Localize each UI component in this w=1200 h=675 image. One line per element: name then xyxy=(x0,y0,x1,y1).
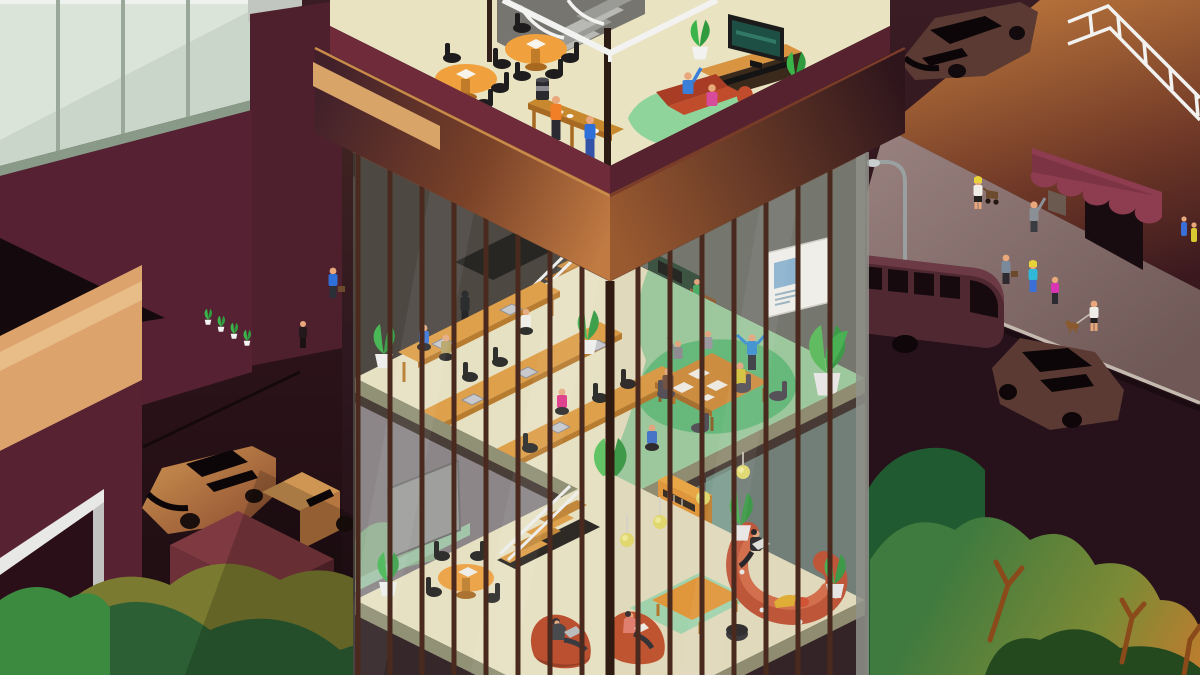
person-leg xyxy=(1091,323,1094,331)
glass-top-frame xyxy=(0,0,252,4)
bus-window xyxy=(914,272,934,296)
person-shorts xyxy=(1091,318,1098,323)
person-alley-dark xyxy=(299,321,307,348)
illustration-stage xyxy=(0,0,1200,675)
car-wheel xyxy=(1062,412,1082,428)
person-head xyxy=(1052,277,1058,283)
person-leg xyxy=(975,202,978,209)
person-torso xyxy=(585,124,596,139)
person-torso xyxy=(551,104,562,120)
person-head xyxy=(1091,301,1098,308)
person-legs xyxy=(1031,221,1038,232)
person-legs xyxy=(300,338,306,348)
car-wheel xyxy=(1009,26,1025,40)
person-legs xyxy=(330,286,337,298)
person-legs xyxy=(1052,293,1058,304)
person-leg xyxy=(1095,323,1098,331)
car-wheel xyxy=(948,64,966,78)
person-skirt xyxy=(974,196,982,202)
bus-window xyxy=(888,269,908,293)
person-torso xyxy=(329,274,338,286)
person-torso xyxy=(299,327,307,338)
person-hair-blonde xyxy=(974,176,982,183)
person-legs xyxy=(552,120,561,140)
person-magenta-woman xyxy=(1051,277,1059,304)
person-torso xyxy=(974,185,983,196)
bus-wheel xyxy=(892,335,918,353)
briefcase xyxy=(338,286,345,292)
person-leg xyxy=(979,202,982,209)
person-legs xyxy=(1030,280,1037,292)
person-torso xyxy=(683,80,694,94)
person-torso xyxy=(1090,307,1099,318)
car-wheel xyxy=(999,384,1017,400)
person-teal-woman xyxy=(1029,260,1038,292)
person-torso xyxy=(1030,208,1039,221)
scene-illustration xyxy=(0,0,1200,675)
person-hair-blonde xyxy=(1029,260,1037,267)
taxi-wheel xyxy=(180,513,200,529)
briefcase xyxy=(1011,271,1018,277)
person-torso xyxy=(1029,269,1038,280)
rooftop-divider-post xyxy=(487,0,492,62)
coffee-machine xyxy=(536,78,549,101)
person-head xyxy=(1003,255,1010,262)
person-head xyxy=(300,321,306,327)
person-torso xyxy=(1051,283,1059,293)
person-torso xyxy=(1002,261,1011,273)
person-legs xyxy=(1003,273,1010,284)
person-head xyxy=(1030,201,1037,208)
person-head xyxy=(330,268,337,275)
bus-window xyxy=(940,275,960,299)
bush-green-left xyxy=(0,587,110,675)
right-edge-strip xyxy=(856,152,869,675)
person-torso xyxy=(707,92,718,106)
